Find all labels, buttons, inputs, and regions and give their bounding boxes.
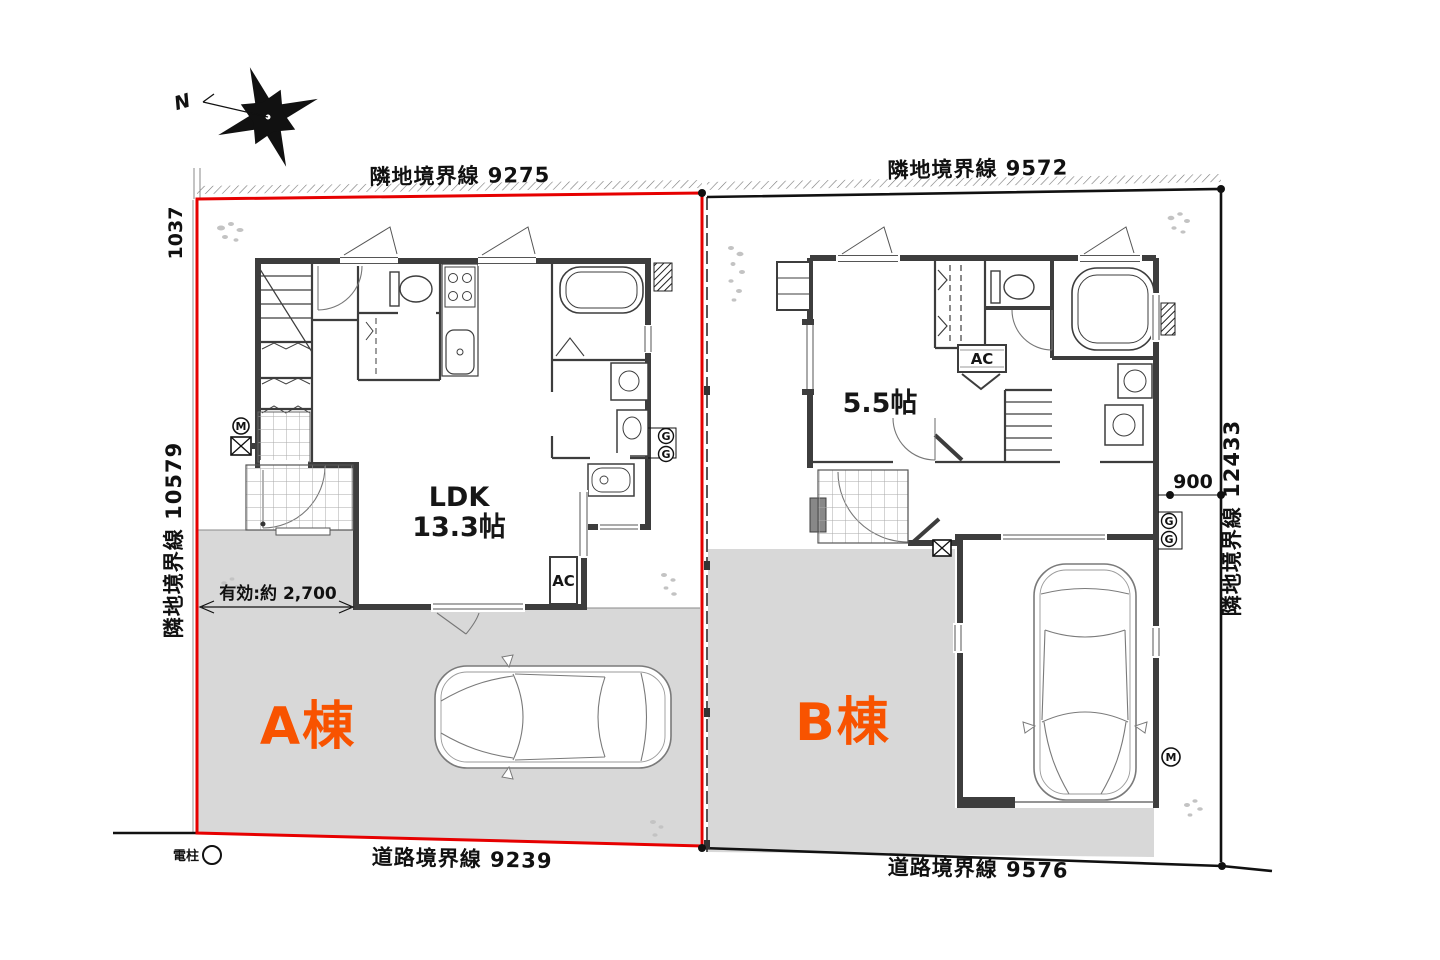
boundary-label-b-bottom: 道路境界線 9576: [888, 855, 1069, 882]
neighbor-structure-hatch-a: [654, 263, 672, 291]
compass-rose: [200, 49, 336, 185]
toilet-b-bowl: [1004, 275, 1034, 299]
bathtub-b-inner: [1078, 275, 1148, 343]
room-b-size-label: 5.5帖: [843, 388, 918, 419]
entrance-hall-a-tiles: [258, 412, 310, 462]
boundary-guide-ticks: [194, 168, 200, 199]
gas-meter-b2-label: G: [1164, 533, 1173, 546]
car-b: [1023, 564, 1147, 800]
neighbor-structure-hatch-b: [1161, 303, 1175, 335]
floor-plan-drawing: N 隣地境界線 9275 隣地境界線 9572 1037 隣地境界線 10579…: [0, 0, 1440, 960]
porch-a-tiles: [246, 465, 353, 530]
boundary-label-a-left: 隣地境界線 10579: [162, 442, 186, 638]
toilet-a-tank: [390, 272, 399, 306]
ac-label-a: AC: [552, 572, 575, 590]
gas-meter-a-label: G: [661, 430, 670, 443]
gas-meter-a2-label: G: [661, 448, 670, 461]
utility-pole-label: 電柱: [173, 848, 199, 864]
porch-b-tiles: [818, 470, 908, 543]
dimension-900-label: 900: [1173, 471, 1213, 493]
lot-a-label: A棟: [260, 697, 356, 757]
utility-pole-icon: [203, 846, 221, 864]
bathtub-a-inner: [566, 272, 637, 308]
site-plan-canvas: N 隣地境界線 9275 隣地境界線 9572 1037 隣地境界線 10579…: [0, 0, 1440, 960]
car-a: [435, 655, 671, 779]
toilet-a-bowl: [400, 276, 432, 302]
boundary-label-a-bottom: 道路境界線 9239: [372, 845, 553, 873]
boundary-label-b-right: 隣地境界線 12433: [1220, 420, 1244, 616]
effective-width-label: 有効:約 2,700: [219, 583, 337, 604]
electric-meter-a-label: M: [236, 420, 247, 433]
electric-meter-b-label: M: [1166, 751, 1177, 764]
boundary-label-b-top: 隣地境界線 9572: [887, 155, 1068, 182]
boundary-label-a-top: 隣地境界線 9275: [369, 163, 550, 189]
house-b-hall-fill: [905, 458, 1158, 543]
porch-a-step: [276, 528, 330, 535]
toilet-b-tank: [991, 271, 1000, 303]
north-label: N: [172, 89, 193, 115]
stove-a: [445, 267, 475, 307]
ldk-label: LDK: [429, 482, 491, 513]
ac-label-b: AC: [971, 350, 994, 368]
boundary-label-a-left-offset: 1037: [165, 207, 187, 260]
gas-meter-b-label: G: [1164, 515, 1173, 528]
ldk-size-label: 13.3帖: [412, 512, 506, 543]
garage-b-corner-wall: [958, 797, 1015, 808]
lot-b-label: B棟: [795, 693, 891, 753]
faucet-a: [457, 349, 463, 355]
balcony-b: [777, 262, 810, 310]
